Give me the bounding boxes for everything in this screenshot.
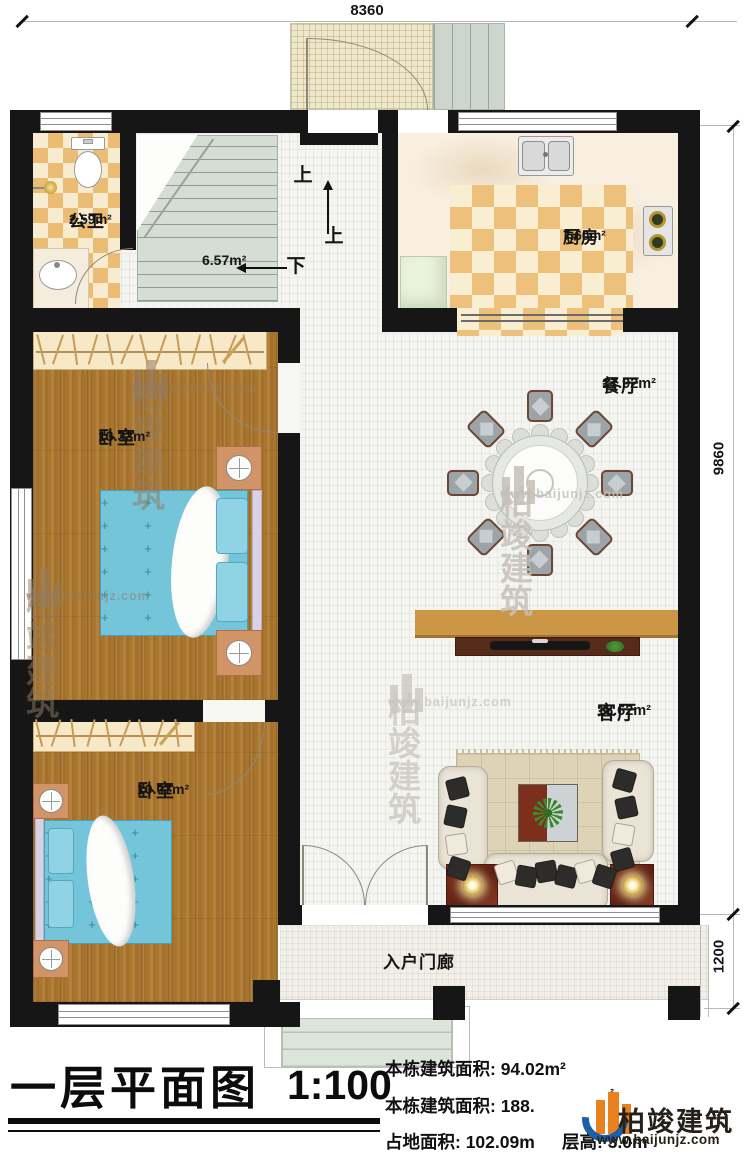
- porch-pillar: [668, 986, 700, 1020]
- title-underline: [8, 1118, 380, 1124]
- door-opening-bedroom1: [278, 363, 300, 433]
- nightstand: [33, 940, 69, 978]
- porch-pillar: [253, 980, 280, 1004]
- down-arrow-line: [245, 267, 287, 269]
- window-bathroom: [40, 112, 112, 131]
- plan-scale: 1:100: [287, 1062, 392, 1109]
- wall-kitchen-bottom: [623, 308, 678, 332]
- footer-url: www.baijunjz.com: [597, 1132, 720, 1147]
- window-living: [450, 907, 660, 923]
- dining-chair: [527, 544, 553, 576]
- stair-label-up: 上: [293, 165, 312, 187]
- porch-pillar: [433, 986, 465, 1020]
- porch-edge: [700, 925, 701, 1017]
- wall-stub: [300, 133, 378, 145]
- plan-title: 一层平面图: [10, 1052, 260, 1118]
- area-row3: 占地面积: 102.09m: [385, 1129, 535, 1154]
- dim-line-right: [733, 126, 734, 1009]
- sofa-pillow: [443, 804, 468, 829]
- room-area: 13.33m²: [98, 428, 150, 444]
- window-kitchen: [458, 112, 617, 131]
- sink-faucet: [543, 152, 548, 157]
- door-opening-bedroom2: [203, 700, 265, 722]
- window-bedroom1: [11, 488, 32, 660]
- fridge: [400, 256, 447, 310]
- toilet-bowl: [74, 151, 102, 188]
- bed-headboard: [35, 818, 44, 944]
- floor-plan: 8360 9860 1200: [0, 0, 750, 1165]
- nightstand: [33, 783, 69, 819]
- room-area: 18.62m²: [597, 703, 651, 720]
- wall-kitchen-left: [382, 133, 398, 310]
- kitchen-rug: [450, 185, 633, 310]
- room-name: 入户门廊: [383, 953, 455, 973]
- wall-right: [678, 110, 700, 925]
- nightstand-lamp: [39, 789, 63, 813]
- nightstand-lamp: [226, 640, 252, 666]
- nightstand-lamp: [39, 947, 63, 971]
- tv-stand: [532, 639, 548, 643]
- sofa-pillow: [614, 795, 639, 820]
- porch-edge: [708, 925, 709, 1017]
- room-area: 2.59m²: [69, 212, 112, 228]
- stove-burner: [649, 234, 666, 251]
- nightstand-lamp: [226, 455, 252, 481]
- sink-basin: [548, 141, 570, 171]
- sink-basin: [522, 141, 545, 171]
- bed-pillow: [216, 498, 248, 554]
- up-arrow-head: [323, 180, 333, 190]
- area-row1: 本栋建筑面积: 94.02m²: [385, 1056, 566, 1081]
- room-area: 6.57m²: [202, 252, 246, 268]
- cabinet-plant: [606, 641, 624, 652]
- title-underline-thin: [8, 1130, 380, 1132]
- room-area: 10.07m²: [137, 781, 189, 797]
- toilet-button: [83, 139, 93, 144]
- room-area: 7.60m²: [563, 228, 606, 244]
- stair-label-up2: 上: [324, 226, 343, 248]
- dim-line-top: [22, 21, 737, 22]
- nightstand: [216, 630, 262, 676]
- table-lamp: [623, 876, 642, 895]
- dining-chair: [527, 390, 553, 422]
- wall-bathroom: [120, 133, 136, 250]
- bed-pillow: [216, 562, 248, 622]
- entry-porch-floor: [280, 925, 708, 1000]
- lazy-susan: [526, 469, 554, 497]
- back-door-opening: [308, 110, 378, 133]
- bed-headboard: [252, 490, 262, 636]
- sofa-pillow: [611, 822, 635, 846]
- stair-label-down: 下: [286, 256, 305, 278]
- wall-opening: [398, 110, 448, 133]
- bed-pillow: [48, 880, 74, 928]
- wall-kitchen-bottom: [382, 308, 457, 332]
- bed-pillow: [48, 828, 74, 874]
- dim-top-value: 8360: [337, 2, 397, 19]
- dim-right-porch-value: 1200: [711, 927, 728, 987]
- dining-chair: [447, 470, 479, 496]
- towel-ring: [44, 181, 57, 194]
- kitchen-doorway-tile: [457, 308, 623, 336]
- area-row2: 本栋建筑面积: 188.: [385, 1093, 535, 1118]
- window-bedroom2: [58, 1004, 230, 1025]
- sofa-pillow: [445, 833, 469, 857]
- rear-steps: [433, 23, 505, 110]
- sliding-door-track: [461, 320, 623, 322]
- faucet: [54, 262, 60, 268]
- room-area: 17.92m²: [602, 376, 656, 393]
- wall-hall-bottom: [10, 308, 300, 332]
- nightstand: [216, 446, 262, 490]
- plant-center: [544, 809, 552, 817]
- stove-burner: [649, 211, 666, 228]
- entry-door-opening: [302, 905, 428, 925]
- entry-door-leaf: [426, 845, 428, 905]
- sliding-door-track: [461, 314, 623, 316]
- dim-right-main-value: 9860: [711, 429, 728, 489]
- rug-fringe: [456, 749, 640, 754]
- dining-chair: [601, 470, 633, 496]
- divider-counter: [415, 610, 678, 638]
